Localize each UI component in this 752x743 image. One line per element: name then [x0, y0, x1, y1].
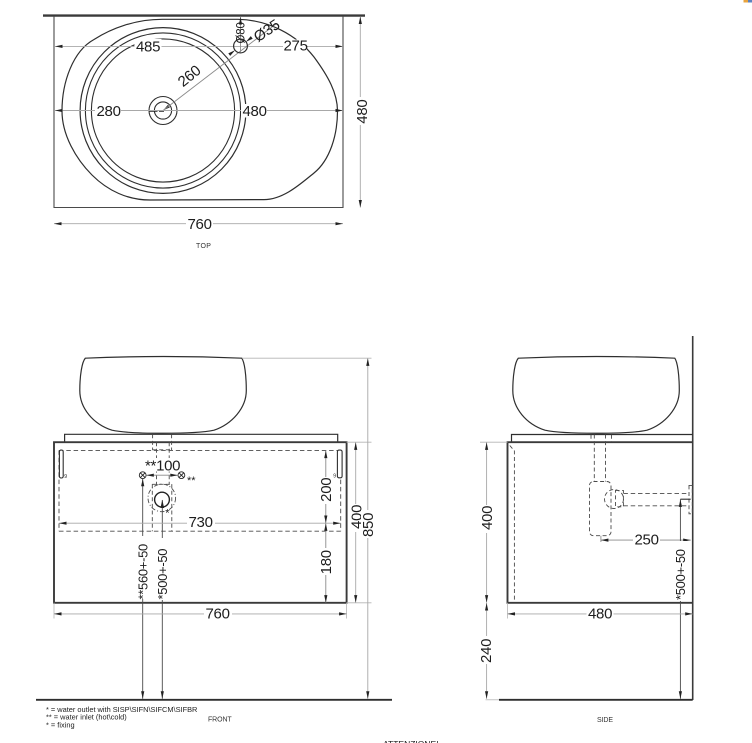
svg-text:**560+-50: **560+-50 — [135, 544, 150, 600]
svg-text:200: 200 — [318, 478, 335, 502]
svg-text:400: 400 — [479, 506, 496, 530]
svg-text:280: 280 — [97, 103, 121, 120]
svg-text:730: 730 — [189, 514, 213, 531]
svg-text:275: 275 — [284, 37, 308, 54]
svg-text:**: ** — [187, 475, 196, 487]
svg-text:760: 760 — [206, 606, 230, 623]
svg-text:260: 260 — [175, 62, 204, 90]
svg-text:SIDE: SIDE — [597, 717, 613, 724]
svg-text:485: 485 — [136, 38, 160, 55]
svg-text:760: 760 — [188, 216, 212, 233]
svg-text:9: 9 — [64, 474, 67, 480]
svg-text:Ø80: Ø80 — [236, 22, 248, 43]
svg-text:*: * — [165, 508, 170, 520]
svg-text:* = fixing: * = fixing — [46, 720, 75, 729]
svg-text:*500+-50: *500+-50 — [673, 549, 688, 600]
svg-text:250: 250 — [635, 532, 659, 549]
svg-text:180: 180 — [318, 550, 335, 574]
svg-text:240: 240 — [478, 639, 495, 663]
svg-text:*500+-50: *500+-50 — [155, 549, 170, 600]
svg-text:850: 850 — [360, 513, 377, 537]
svg-text:480: 480 — [243, 103, 267, 120]
svg-text:480: 480 — [588, 606, 612, 623]
svg-text:TOP: TOP — [196, 243, 211, 250]
svg-text:ATTENZIONE!: ATTENZIONE! — [383, 739, 439, 743]
svg-text:FRONT: FRONT — [208, 716, 232, 723]
svg-text:480: 480 — [354, 100, 371, 124]
svg-text:**100: **100 — [145, 458, 180, 475]
